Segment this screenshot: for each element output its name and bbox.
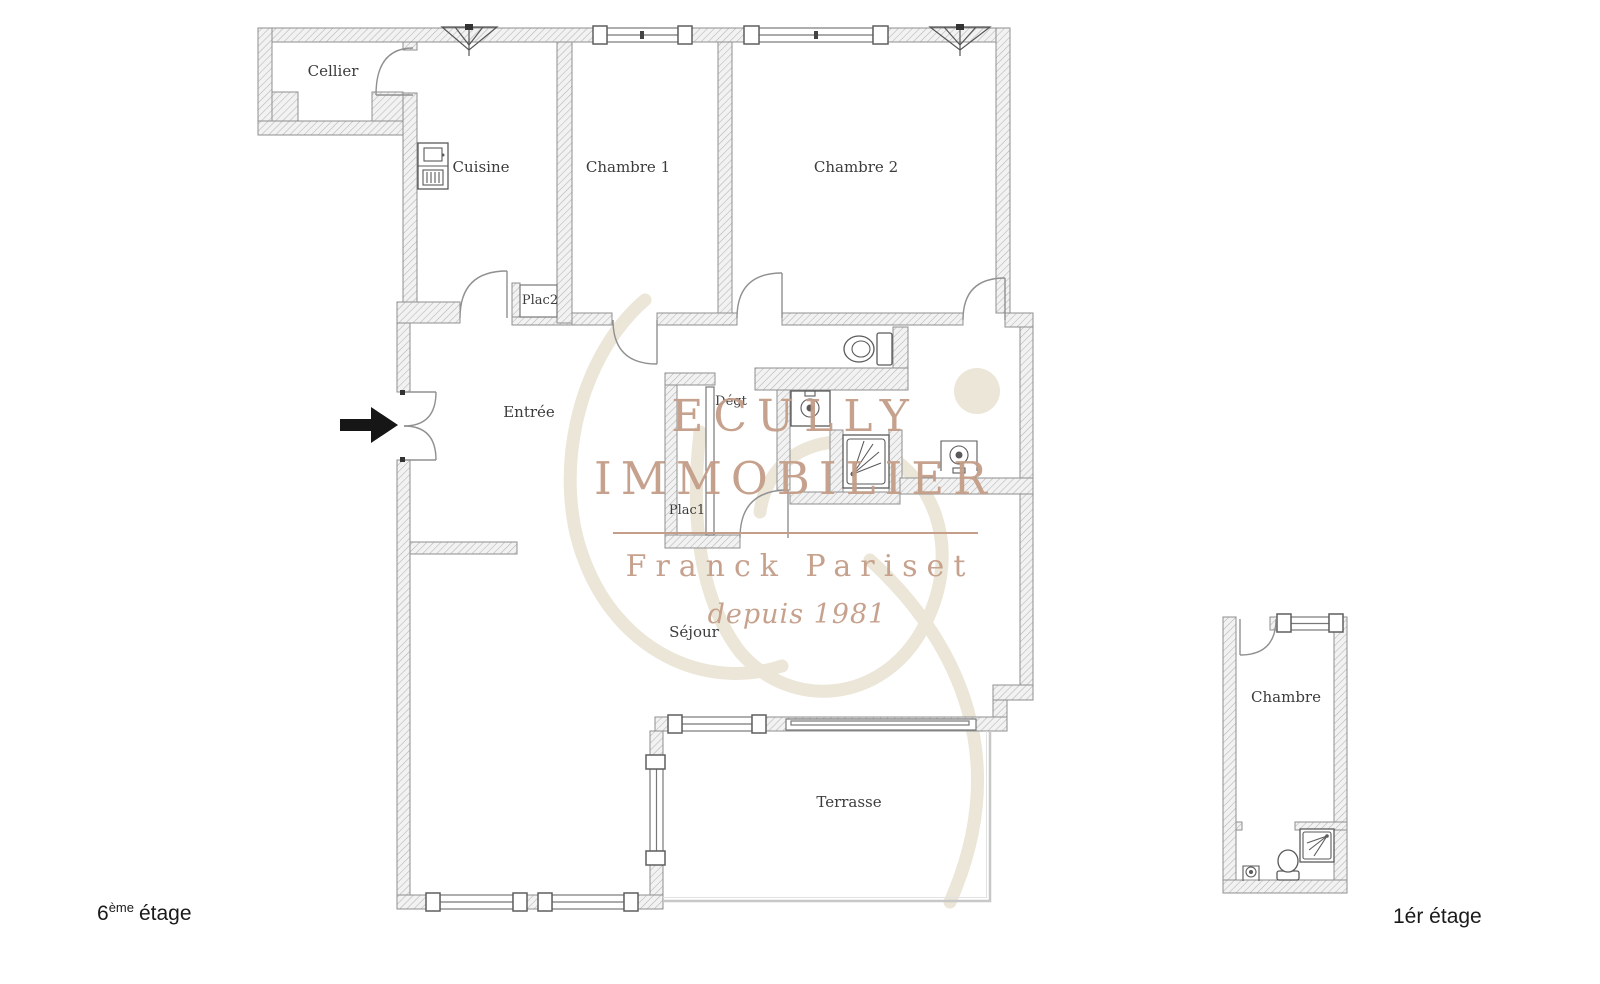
room-label-cuisine: Cuisine — [453, 158, 510, 176]
annex-floorplan: Chambre — [1223, 614, 1347, 893]
floor-ordinal-suffix: ème — [109, 900, 134, 915]
room-label-plac1: Plac1 — [669, 503, 705, 518]
room-label-plac2: Plac2 — [522, 293, 558, 308]
sink-icon — [1243, 866, 1259, 881]
watermark-tagline: depuis 1981 — [708, 599, 887, 630]
watermark-name: Franck Pariset — [626, 549, 975, 584]
wall-left-lower — [397, 460, 410, 909]
floor-label-1st: 1ér étage — [1393, 905, 1482, 929]
wall-cellier-notch-left — [272, 92, 298, 121]
wall-sp-partition-stub — [1236, 822, 1242, 830]
floorplan-page: Cellier Cuisine Chambre 1 Chambre 2 Plac… — [0, 0, 1600, 984]
wall-right-upper — [996, 28, 1010, 313]
room-label-chambre2: Chambre 2 — [814, 158, 898, 176]
room-label-entree: Entrée — [503, 403, 555, 421]
wall-plac1-bottom — [665, 535, 740, 548]
toilet-icon — [1277, 850, 1299, 880]
wall-left-upper — [397, 323, 410, 392]
wall-mid-a — [572, 313, 612, 325]
door-chambre2 — [737, 273, 782, 318]
room-label-chambre1: Chambre 1 — [586, 158, 670, 176]
room-label-cellier: Cellier — [308, 62, 360, 80]
wall-entree-bottom — [410, 542, 517, 554]
wall-divider — [718, 42, 732, 313]
wall-cellier-bottom — [258, 121, 403, 135]
wall-chambre1-left — [557, 42, 572, 323]
window-annex — [1277, 614, 1343, 632]
wall-sp-left — [1223, 617, 1236, 893]
entrance-arrow-icon — [340, 407, 398, 443]
wall-step-block — [993, 685, 1033, 700]
window-terrace-side — [646, 755, 665, 865]
wall-mid-b — [657, 313, 737, 325]
wall-right-mid — [1020, 327, 1033, 685]
door-cellier — [376, 48, 413, 95]
room-label-chambre-annex: Chambre — [1251, 688, 1321, 706]
wall-mid-c — [782, 313, 963, 325]
wall-wc-bottom — [755, 368, 908, 390]
toilet-icon — [844, 333, 892, 365]
wall-entree-top — [397, 302, 460, 323]
window-sejour-right — [538, 893, 638, 911]
door-entrance-double — [400, 390, 436, 462]
wall-mid-d — [1005, 313, 1033, 327]
window-terrace-front — [668, 715, 766, 733]
wall-sp-right — [1334, 617, 1347, 893]
floor-number: 6 — [97, 902, 109, 925]
window-sejour-left — [426, 893, 527, 911]
floorplan-canvas: Cellier Cuisine Chambre 1 Chambre 2 Plac… — [0, 0, 1600, 984]
fridge-icon — [418, 143, 448, 189]
wall-cuisine-left — [403, 93, 417, 323]
door-cuisine — [460, 271, 507, 318]
window-chambre1 — [593, 26, 692, 44]
floor-label-6th: 6èmeétage — [97, 900, 192, 926]
wall-cellier-notch-right — [372, 92, 403, 121]
floor-word: étage — [139, 902, 192, 925]
watermark-brand-line2: IMMOBILIER — [594, 452, 996, 505]
wall-cellier-left — [258, 28, 272, 135]
window-chambre2 — [744, 26, 888, 44]
sliding-door-terrace — [786, 719, 976, 730]
fixtures-annex — [1243, 829, 1334, 881]
wall-plac1-top — [665, 373, 715, 385]
wall-sp-bottom — [1223, 880, 1347, 893]
watermark-brand-line1: ECULLY — [671, 391, 919, 442]
shower-icon — [1300, 829, 1334, 862]
terrace-border — [663, 731, 990, 901]
room-label-terrasse: Terrasse — [816, 793, 881, 811]
terrace-border-inner — [663, 731, 987, 898]
